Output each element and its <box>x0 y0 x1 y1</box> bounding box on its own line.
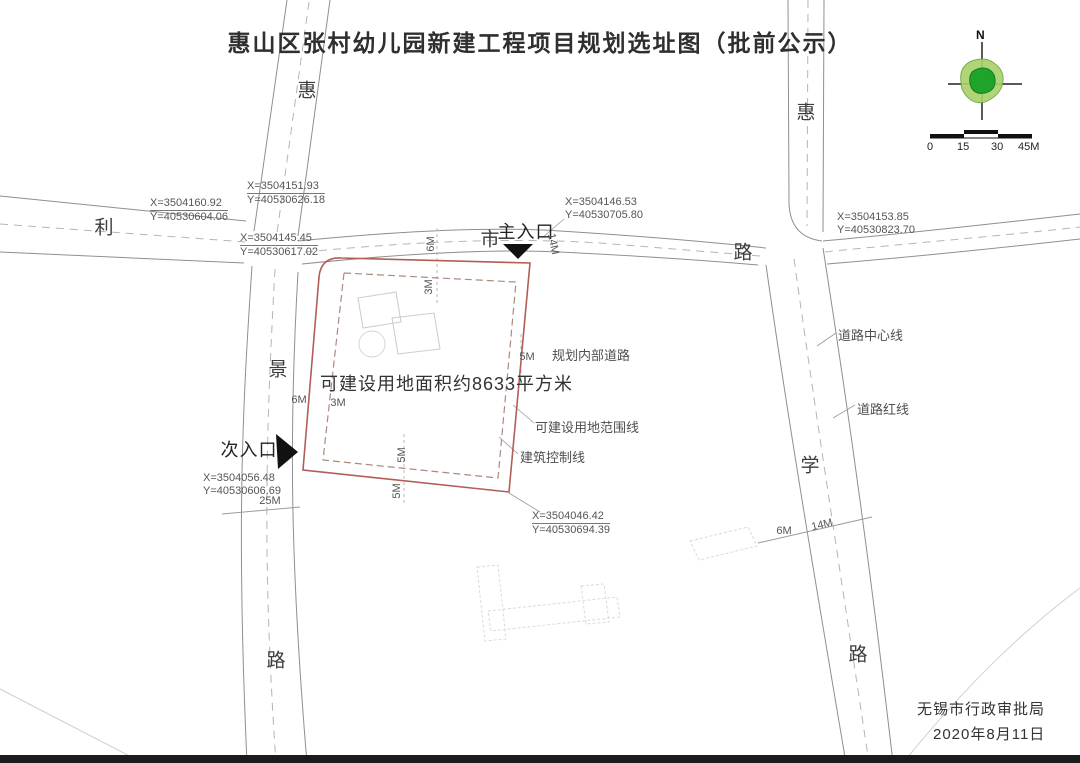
page-title: 惠山区张村幼儿园新建工程项目规划选址图（批前公示） <box>0 24 1080 58</box>
coord-x: X=3504160.92 <box>150 197 228 211</box>
coord-y: Y=40530626.18 <box>247 194 325 207</box>
road-label-lu-north: 路 <box>733 238 752 265</box>
north-label: N <box>976 28 985 42</box>
annotation-road-redline: 道路红线 <box>857 399 909 418</box>
coord-y: Y=40530617.02 <box>240 246 318 259</box>
dimension-label: 3M <box>330 397 345 409</box>
secondary-entrance-label: 次入口 <box>221 436 278 462</box>
annotation-control-line: 建筑控制线 <box>520 447 585 466</box>
bottom-edge-bar <box>0 755 1080 763</box>
coord-x: X=3504153.85 <box>837 211 915 224</box>
annotation-boundary-line: 可建设用地范围线 <box>535 417 639 436</box>
scale-tick-45: 45M <box>1018 141 1039 153</box>
coord-y: Y=40530694.39 <box>532 524 610 537</box>
road-label-xue: 学 <box>800 451 819 478</box>
dimension-label: 5M <box>519 351 534 363</box>
site-area-note: 可建设用地面积约8633平方米 <box>320 370 573 396</box>
coordinate-label-2: X=3504160.92 Y=40530604.06 <box>150 197 228 224</box>
coordinate-label-1: X=3504151.93 Y=40530626.18 <box>247 180 325 207</box>
road-label-hui-ne: 惠 <box>796 98 815 125</box>
site-plan-map: 惠山区张村幼儿园新建工程项目规划选址图（批前公示） N 0 15 30 45M … <box>0 0 1080 763</box>
coord-y: Y=40530823.70 <box>837 224 915 237</box>
coord-x: X=3504151.93 <box>247 180 325 194</box>
road-label-jing: 景 <box>268 355 287 382</box>
dimension-label: 5M <box>396 447 408 462</box>
coord-x: X=3504046.42 <box>532 510 610 524</box>
road-label-li: 利 <box>94 213 113 240</box>
coordinate-label-7: X=3504046.42 Y=40530694.39 <box>532 510 610 537</box>
road-label-lu-east: 路 <box>848 640 867 667</box>
scale-tick-15: 15 <box>957 141 969 153</box>
annotation-road-centerline: 道路中心线 <box>838 325 903 344</box>
dimension-label: 6M <box>776 525 791 537</box>
dimension-label: 6M <box>425 236 437 251</box>
coordinate-label-4: X=3504146.53 Y=40530705.80 <box>565 196 643 222</box>
coordinate-label-3: X=3504145.45 Y=40530617.02 <box>240 232 318 259</box>
adjacent-buildings <box>477 527 757 641</box>
dimension-guides <box>404 228 521 506</box>
scale-bar <box>930 130 1032 138</box>
dimension-label: 5M <box>391 483 403 498</box>
coord-x: X=3504145.45 <box>240 232 318 246</box>
road-label-lu-west: 路 <box>266 646 285 673</box>
dimension-label: 25M <box>259 495 280 507</box>
scale-tick-30: 30 <box>991 141 1003 153</box>
annotation-internal-road: 规划内部道路 <box>552 345 630 364</box>
coord-y: Y=40530604.06 <box>150 211 228 224</box>
issuing-authority: 无锡市行政审批局 <box>917 698 1045 719</box>
coord-x: X=3504146.53 <box>565 196 643 209</box>
coord-y: Y=40530705.80 <box>565 209 643 222</box>
existing-buildings <box>358 292 440 357</box>
road-label-hui-nw: 惠 <box>297 76 316 103</box>
dimension-label: 3M <box>423 279 435 294</box>
secondary-entrance-marker <box>276 434 298 469</box>
coord-x: X=3504056.48 <box>203 472 281 485</box>
coordinate-label-5: X=3504153.85 Y=40530823.70 <box>837 211 915 237</box>
publish-date: 2020年8月11日 <box>933 723 1045 744</box>
scale-tick-0: 0 <box>927 141 933 153</box>
peripheral-lines <box>0 507 1080 763</box>
dimension-label: 6M <box>291 394 306 406</box>
